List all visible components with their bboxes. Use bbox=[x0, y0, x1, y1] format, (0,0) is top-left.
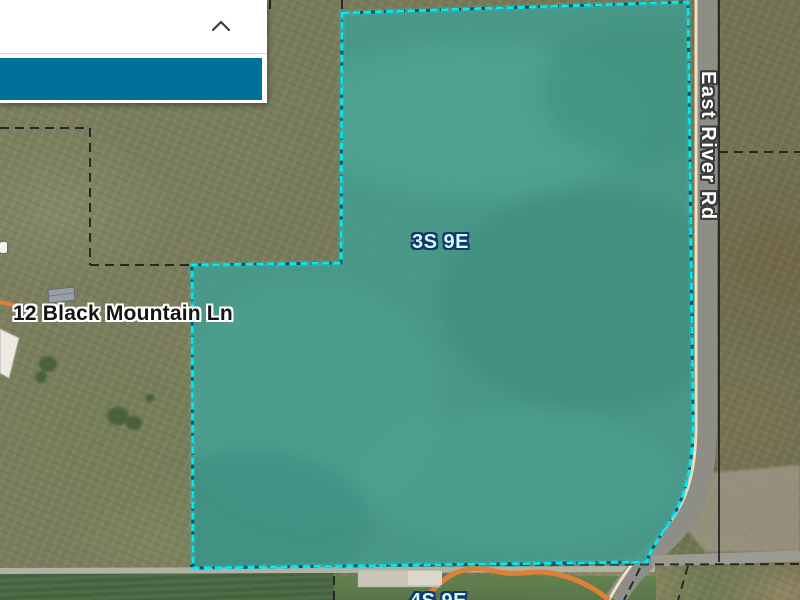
clipped-label-fragment bbox=[0, 242, 7, 253]
map-viewport[interactable]: 3S 9E 4S 9E 12 Black Mountain Ln East Ri… bbox=[0, 0, 800, 600]
collapse-panel-button[interactable] bbox=[206, 12, 236, 40]
building-white-clipped bbox=[0, 329, 19, 378]
orange-driveway-stub bbox=[0, 302, 16, 306]
building-slab-light bbox=[408, 571, 442, 585]
east-branch-road bbox=[652, 556, 800, 561]
results-panel bbox=[0, 0, 267, 103]
results-panel-header bbox=[0, 0, 267, 54]
orange-driveway-arc bbox=[424, 568, 609, 600]
south-road bbox=[0, 569, 655, 571]
selected-result-row[interactable] bbox=[0, 58, 262, 100]
chevron-up-icon bbox=[212, 21, 230, 31]
